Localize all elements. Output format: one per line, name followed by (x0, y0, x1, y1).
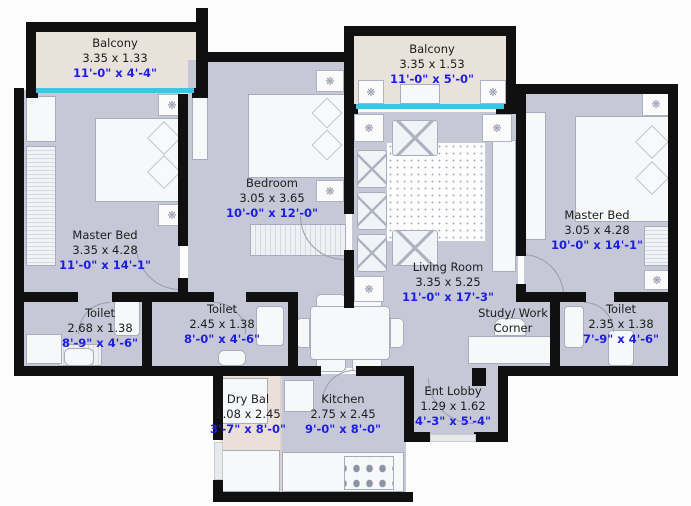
room-dim-metric: 3.35 x 1.33 (40, 51, 190, 66)
room-dim-imperial: 7'-9" x 4'-6" (562, 332, 680, 347)
wall (344, 26, 516, 36)
room-label-ent-lobby: Ent Lobby 1.29 x 1.62 4'-3" x 5'-4" (405, 384, 501, 429)
room-label-toilet-left: Toilet 2.68 x 1.38 8'-9" x 4'-6" (40, 306, 160, 351)
room-dim-metric: 3.05 x 3.65 (197, 191, 347, 206)
wall (356, 366, 414, 376)
wash-basin (218, 350, 246, 366)
room-dim-imperial: 10'-0" x 14'-1" (522, 238, 672, 253)
fan-icon: ❋ (482, 114, 512, 142)
wall (506, 26, 516, 114)
shelf (192, 96, 208, 160)
room-name: Ent Lobby (405, 384, 501, 399)
room-name: Balcony (40, 36, 190, 51)
room-dim-imperial: 11'-0" x 17'-3" (373, 290, 523, 305)
armchair (392, 120, 438, 156)
room-dim-imperial: 9'-0" x 8'-0" (293, 422, 393, 437)
room-dim-metric: 2.75 x 2.45 (293, 407, 393, 422)
room-name: Master Bed (522, 208, 672, 223)
room-label-balcony-tr: Balcony 3.35 x 1.53 11'-0" x 5'-0" (357, 42, 507, 87)
stove-hob (344, 456, 394, 490)
room-dim-imperial: 11'-0" x 14'-1" (30, 258, 180, 273)
study-desk (468, 336, 556, 364)
room-label-dry-bal: Dry Bal 1.08 x 2.45 3'-7" x 8'-0" (205, 392, 291, 437)
room-dim-imperial: 8'-0" x 4'-6" (162, 332, 282, 347)
room-label-master-left: Master Bed 3.35 x 4.28 11'-0" x 14'-1" (30, 228, 180, 273)
wardrobe (26, 96, 56, 142)
room-name: Study/ Work Corner (466, 306, 560, 336)
wall (550, 366, 678, 376)
room-dim-metric: 2.68 x 1.38 (40, 321, 160, 336)
room-dim-imperial: 3'-7" x 8'-0" (205, 422, 291, 437)
room-name: Balcony (357, 42, 507, 57)
wall (26, 22, 208, 32)
room-dim-imperial: 4'-3" x 5'-4" (405, 414, 501, 429)
fan-icon: ❋ (642, 92, 670, 116)
room-name: Master Bed (30, 228, 180, 243)
window (214, 442, 223, 480)
room-name: Toilet (162, 302, 282, 317)
room-label-toilet-center: Toilet 2.45 x 1.38 8'-0" x 4'-6" (162, 302, 282, 347)
wall (344, 26, 354, 114)
room-dim-imperial: 11'-0" x 5'-0" (357, 72, 507, 87)
wall (196, 52, 354, 62)
window (356, 104, 504, 109)
fan-icon: ❋ (354, 114, 384, 142)
wall (26, 22, 36, 98)
wall (288, 292, 298, 376)
wall (152, 292, 214, 302)
tv-unit (492, 140, 516, 272)
room-dim-metric: 3.35 x 1.53 (357, 57, 507, 72)
room-label-study: Study/ Work Corner (466, 306, 560, 336)
wall (614, 292, 678, 302)
dining-table (310, 306, 390, 360)
counter (222, 450, 280, 492)
fan-icon: ❋ (316, 70, 344, 92)
room-dim-metric: 2.45 x 1.38 (162, 317, 282, 332)
room-name: Bedroom (197, 176, 347, 191)
room-dim-imperial: 11'-0" x 4'-4" (40, 66, 190, 81)
wall (344, 250, 354, 308)
room-name: Toilet (40, 306, 160, 321)
fan-icon: ❋ (644, 270, 670, 290)
room-dim-metric: 3.05 x 4.28 (522, 223, 672, 238)
sofa-seat (357, 192, 387, 230)
room-dim-metric: 1.08 x 2.45 (205, 407, 291, 422)
room-label-master-right: Master Bed 3.05 x 4.28 10'-0" x 14'-1" (522, 208, 672, 253)
wall (14, 366, 298, 376)
wall (14, 88, 24, 376)
sofa-seat (357, 150, 387, 188)
room-name: Toilet (562, 302, 680, 317)
rug (386, 142, 486, 242)
wall (178, 94, 188, 246)
room-label-kitchen: Kitchen 2.75 x 2.45 9'-0" x 8'-0" (293, 392, 393, 437)
dining-chair (296, 318, 310, 348)
room-label-living: Living Room 3.35 x 5.25 11'-0" x 17'-3" (373, 260, 523, 305)
wall (474, 432, 508, 442)
wall (14, 292, 78, 302)
entrance-threshold (430, 434, 476, 442)
room-name: Dry Bal (205, 392, 291, 407)
room-label-toilet-right: Toilet 2.35 x 1.38 7'-9" x 4'-6" (562, 302, 680, 347)
room-dim-metric: 3.35 x 4.28 (30, 243, 180, 258)
room-label-balcony-tl: Balcony 3.35 x 1.33 11'-0" x 4'-4" (40, 36, 190, 81)
window (36, 88, 194, 93)
wall (213, 492, 413, 502)
room-dim-imperial: 10'-0" x 12'-0" (197, 206, 347, 221)
wall (192, 88, 208, 98)
floor-plan: ❋ ❋ ❋ ❋ ❋ ❋ ❋ ❋ ❋ (0, 0, 691, 506)
room-name: Kitchen (293, 392, 393, 407)
room-dim-imperial: 8'-9" x 4'-6" (40, 336, 160, 351)
room-dim-metric: 1.29 x 1.62 (405, 399, 501, 414)
wall (516, 84, 678, 94)
room-label-bedroom: Bedroom 3.05 x 3.65 10'-0" x 12'-0" (197, 176, 347, 221)
wall (287, 366, 321, 376)
room-dim-metric: 3.35 x 5.25 (373, 275, 523, 290)
room-dim-metric: 2.35 x 1.38 (562, 317, 680, 332)
dining-chair (390, 318, 404, 348)
balcony-table (400, 84, 440, 104)
room-name: Living Room (373, 260, 523, 275)
wall (404, 432, 430, 442)
